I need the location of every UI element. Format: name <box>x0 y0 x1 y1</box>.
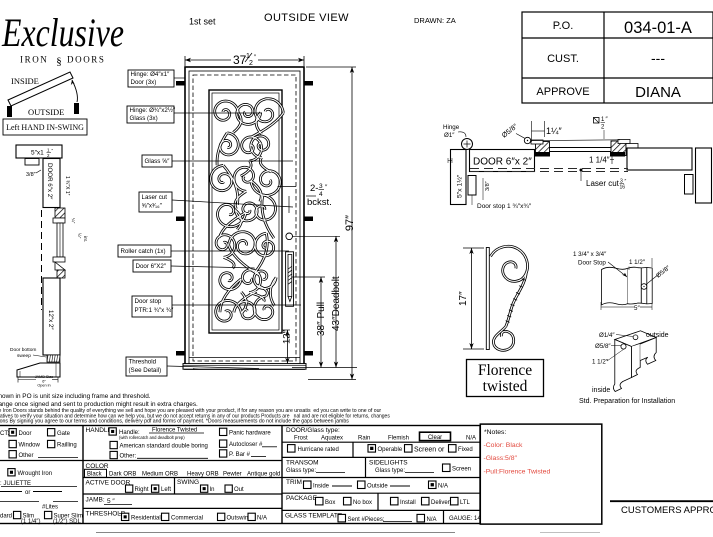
svg-text:1 1/2″: 1 1/2″ <box>629 259 646 266</box>
svg-text:OUTSIDE VIEW: OUTSIDE VIEW <box>264 12 349 24</box>
svg-text:CUSTOMERS APPROVAL: CUSTOMERS APPROVAL <box>621 505 713 516</box>
svg-text:P.O.: P.O. <box>553 20 574 32</box>
svg-text:N/A: N/A <box>257 515 267 521</box>
svg-text:Hinge: Hinge <box>443 124 460 131</box>
svg-text:PTR:1 ¾″x ¾″: PTR:1 ¾″x ¾″ <box>135 307 175 314</box>
svg-text:2: 2 <box>601 125 605 131</box>
svg-text:3: 3 <box>319 183 323 190</box>
svg-text:1 ¾″X 1″: 1 ¾″X 1″ <box>64 176 70 196</box>
svg-text:½″: ½″ <box>77 233 83 239</box>
svg-text:Inside: Inside <box>313 483 330 489</box>
svg-text:034-01-A: 034-01-A <box>624 19 692 37</box>
svg-text:CT:: CT: <box>0 431 9 437</box>
svg-text:Out: Out <box>234 487 244 493</box>
svg-text:Laser cut: Laser cut <box>586 179 620 188</box>
svg-text:Delivery: Delivery <box>431 500 453 506</box>
svg-text:43″Deadbolt: 43″Deadbolt <box>331 276 342 331</box>
svg-text:No box: No box <box>353 500 372 506</box>
svg-text:Door Stop: Door Stop <box>578 260 606 267</box>
svg-text:#Lites: #Lites <box>42 505 58 511</box>
svg-text:DRAWN: ZA: DRAWN: ZA <box>414 16 456 25</box>
svg-text:Laser cut: Laser cut <box>142 194 168 201</box>
svg-text:IRON: IRON <box>20 55 48 65</box>
svg-text:Outside: Outside <box>367 483 388 489</box>
svg-text:sweep: sweep <box>17 354 31 359</box>
svg-text:DOOR 6″x 2″: DOOR 6″x 2″ <box>473 157 532 168</box>
svg-text:1: 1 <box>601 117 605 123</box>
svg-text:LTL: LTL <box>460 500 471 506</box>
svg-text:INSIDE: INSIDE <box>11 76 39 86</box>
svg-text:1st set: 1st set <box>189 17 216 27</box>
svg-text:Glass type:: Glass type: <box>375 468 405 474</box>
svg-text:Install: Install <box>400 500 416 506</box>
svg-text:Ø5/8″: Ø5/8″ <box>655 264 672 280</box>
svg-text:TRIM: TRIM <box>286 479 302 486</box>
svg-text:97″: 97″ <box>344 215 356 231</box>
svg-text:Rain: Rain <box>358 435 370 441</box>
svg-text:Commercial: Commercial <box>171 515 203 521</box>
svg-text:bckst.: bckst. <box>307 197 332 208</box>
svg-text:PACKAGE: PACKAGE <box>286 495 318 502</box>
svg-text:DIANA: DIANA <box>635 84 681 101</box>
svg-text:N/A: N/A <box>466 435 476 441</box>
svg-text:Other: Other <box>19 453 34 459</box>
svg-text:2: 2 <box>249 60 253 67</box>
svg-text:Exclusive: Exclusive <box>1 10 124 55</box>
svg-text:GAUGE: 14: GAUGE: 14 <box>449 516 481 522</box>
svg-text:1 3/4″ x 3/4″: 1 3/4″ x 3/4″ <box>573 251 607 258</box>
svg-text:ions By signing you agree to o: ions By signing you agree to our terms a… <box>0 419 349 425</box>
svg-text:Threshold: Threshold <box>129 359 157 366</box>
svg-text:37: 37 <box>233 53 247 67</box>
svg-text:⅝″x³⁄₁₆″: ⅝″x³⁄₁₆″ <box>142 203 163 210</box>
svg-text:17″: 17″ <box>458 291 469 306</box>
svg-text:2-: 2- <box>310 183 318 194</box>
svg-text:″: ″ <box>606 117 609 123</box>
svg-text:3/8″: 3/8″ <box>485 181 491 191</box>
svg-text:Glass type:: Glass type: <box>286 468 316 474</box>
svg-text:Box: Box <box>325 500 335 506</box>
svg-text:1¼″: 1¼″ <box>546 126 563 136</box>
svg-text:Right: Right <box>135 487 149 493</box>
svg-text:Glass ⅝″: Glass ⅝″ <box>145 158 171 165</box>
svg-text:5 ″: 5 ″ <box>107 498 115 505</box>
svg-text:Flemish: Flemish <box>388 435 409 441</box>
svg-text:---: --- <box>651 50 665 66</box>
svg-text:″: ″ <box>325 184 328 191</box>
svg-text:Ø5/8″: Ø5/8″ <box>595 343 611 350</box>
svg-text:Screen: Screen <box>452 466 471 472</box>
svg-text:(1 1/4″): (1 1/4″) <box>21 519 40 525</box>
svg-text:or: or <box>25 490 30 496</box>
svg-text:¼″: ¼″ <box>71 218 76 224</box>
svg-text:Gate: Gate <box>57 431 71 437</box>
svg-text:outside: outside <box>646 332 669 339</box>
svg-text:-Pull:Florence Twisted: -Pull:Florence Twisted <box>484 469 551 476</box>
svg-text:Operable: Operable <box>378 447 403 453</box>
svg-text:Autocloser #: Autocloser # <box>229 442 263 448</box>
svg-text:″: ″ <box>254 55 257 61</box>
svg-text:Glass (3x): Glass (3x) <box>130 115 158 122</box>
svg-text:38″ Pull: 38″ Pull <box>316 302 327 336</box>
svg-text:ACTIVE DOOR: ACTIVE DOOR <box>86 479 131 486</box>
svg-text:CUST.: CUST. <box>547 53 579 65</box>
svg-text:nown in PO is unit size includ: nown in PO is unit size including frame … <box>0 393 151 400</box>
svg-text:Antique gold: Antique gold <box>247 471 280 477</box>
svg-text:(See Detail): (See Detail) <box>129 367 162 374</box>
svg-text:P. Bar #: P. Bar # <box>229 452 251 458</box>
svg-text:Ø5/8″: Ø5/8″ <box>501 123 520 140</box>
svg-text:OUTSIDE: OUTSIDE <box>28 107 64 117</box>
svg-text:ange once signed and sent to p: ange once signed and sent to production … <box>0 401 198 408</box>
svg-text:Sent #Pieces:: Sent #Pieces: <box>348 517 385 523</box>
svg-text:5″: 5″ <box>634 305 640 312</box>
svg-text:Roller catch (1x): Roller catch (1x) <box>121 248 166 255</box>
svg-text:12″x 2″: 12″x 2″ <box>47 310 54 330</box>
svg-text:Residential: Residential <box>131 515 161 521</box>
svg-text:-Color: Black: -Color: Black <box>484 442 524 449</box>
svg-text:Hurricane rated: Hurricane rated <box>298 447 339 453</box>
svg-text:Door (3x): Door (3x) <box>131 79 157 86</box>
svg-text:In: In <box>210 487 215 493</box>
svg-text:SIDELIGHTS: SIDELIGHTS <box>369 460 408 467</box>
svg-text:N/A: N/A <box>427 517 437 523</box>
svg-text:Medium ORB: Medium ORB <box>142 471 178 477</box>
svg-text:Hinge: Ø¾″x2½″: Hinge: Ø¾″x2½″ <box>130 107 176 114</box>
svg-text:N/A: N/A <box>438 483 448 489</box>
svg-text:APPROVE: APPROVE <box>536 86 589 98</box>
svg-text:1 1/4″: 1 1/4″ <box>589 156 610 165</box>
svg-text:§: § <box>56 56 62 68</box>
svg-text:DOOR 6″x 2″: DOOR 6″x 2″ <box>46 163 53 200</box>
svg-text:Aquatex: Aquatex <box>321 435 343 441</box>
svg-text:dard: dard <box>0 514 12 520</box>
svg-text:Pewter: Pewter <box>223 471 242 477</box>
svg-text:Screen or: Screen or <box>414 446 445 453</box>
svg-text:Window: Window <box>19 443 41 449</box>
svg-text:inside: inside <box>592 387 610 394</box>
svg-text:DOOR/Glass type:: DOOR/Glass type: <box>286 427 340 434</box>
svg-text:12″: 12″ <box>282 329 293 344</box>
svg-text:GLASS TEMPLATE: GLASS TEMPLATE <box>285 512 343 519</box>
svg-text:TRANSOM: TRANSOM <box>286 460 319 467</box>
svg-text:Left HAND IN-SWING: Left HAND IN-SWING <box>6 123 84 132</box>
svg-text:Frost: Frost <box>294 435 308 441</box>
svg-text:Hinge: Ø4″x1″: Hinge: Ø4″x1″ <box>131 71 171 78</box>
svg-text:(1/2″) SDL: (1/2″) SDL <box>53 519 81 525</box>
svg-text:″: ″ <box>625 179 627 185</box>
svg-text:Clear: Clear <box>428 435 442 441</box>
svg-text:Heavy ORB: Heavy ORB <box>187 471 219 477</box>
svg-text:Panic hardware: Panic hardware <box>229 430 271 436</box>
svg-text:Door stop: Door stop <box>135 298 162 305</box>
svg-text:Railling: Railling <box>57 443 77 449</box>
svg-text:Fixed: Fixed <box>458 447 473 453</box>
svg-text:(with rollercatch and deadbolt: (with rollercatch and deadbolt prep) <box>119 435 185 440</box>
svg-text:Ø1/4″: Ø1/4″ <box>599 332 615 339</box>
svg-text:Dark ORB: Dark ORB <box>109 471 136 477</box>
svg-text:Wrought Iron: Wrought Iron <box>18 471 53 477</box>
svg-text:SWING: SWING <box>177 479 199 486</box>
svg-text:5″x1: 5″x1 <box>31 150 44 157</box>
svg-text:5″x 1½″: 5″x 1½″ <box>456 174 464 198</box>
svg-text:Ø1″: Ø1″ <box>444 132 455 139</box>
svg-text:JAMB:: JAMB: <box>86 496 105 503</box>
svg-text:Door stop 1 ¾″x¾″: Door stop 1 ¾″x¾″ <box>477 203 532 210</box>
svg-text:16: 16 <box>620 185 626 191</box>
svg-text:int.: int. <box>83 236 88 242</box>
svg-text:Door: Door <box>19 431 32 437</box>
svg-text:Other:: Other: <box>120 454 137 460</box>
svg-text:THRESHOLD: THRESHOLD <box>86 510 126 517</box>
svg-text:Door bottom: Door bottom <box>10 347 36 353</box>
svg-text:-Glass:5/8″: -Glass:5/8″ <box>484 455 518 462</box>
svg-text:Left: Left <box>161 487 171 493</box>
svg-text:Florence: Florence <box>478 362 532 379</box>
svg-text:3/8″: 3/8″ <box>26 172 36 178</box>
svg-text:American standard double borin: American standard double boring <box>120 444 208 450</box>
svg-text:Door 6″X2″: Door 6″X2″ <box>136 263 167 270</box>
svg-text:Black: Black <box>87 472 103 478</box>
svg-text:1 1/2″: 1 1/2″ <box>592 359 609 366</box>
svg-text:DOORS: DOORS <box>67 55 106 65</box>
svg-text:*Notes:: *Notes: <box>484 429 506 436</box>
svg-text:twisted: twisted <box>483 378 528 395</box>
svg-text:Std. Preparation for Installat: Std. Preparation for Installation <box>579 398 675 405</box>
svg-text:Open in: Open in <box>37 384 50 388</box>
